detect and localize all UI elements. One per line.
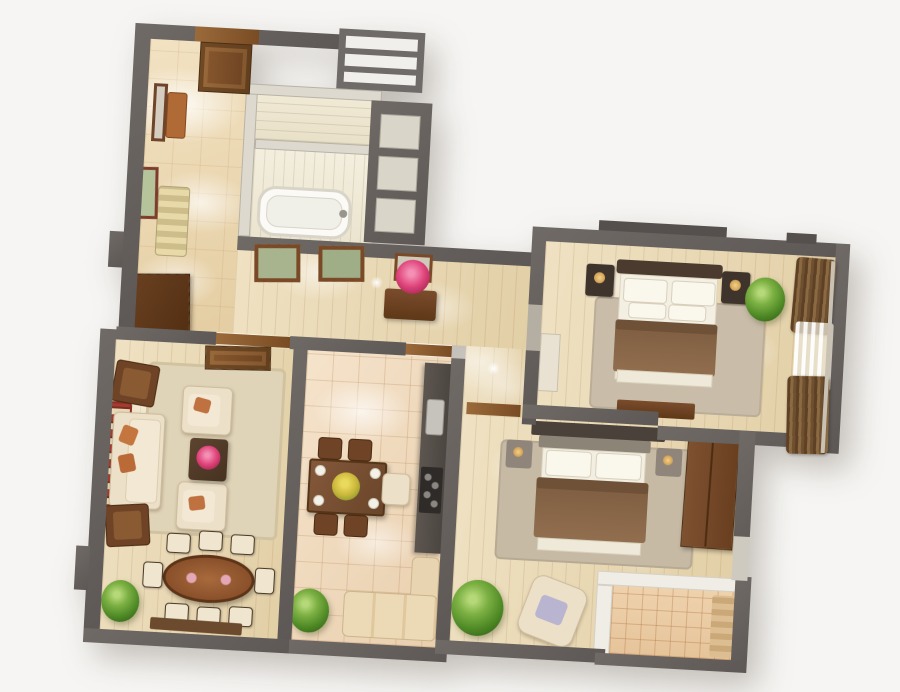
entrance-door-leaf — [198, 42, 253, 95]
corridor-picture-1 — [254, 244, 300, 282]
stove-burners — [421, 470, 441, 511]
dining-chair-1 — [166, 533, 191, 554]
dining-chair-3 — [230, 534, 255, 555]
dining-chair-2 — [198, 530, 223, 551]
kitchen-chair-2 — [347, 438, 372, 461]
kitchen-armchair — [381, 472, 411, 506]
side-chair-bottom-seat — [113, 511, 142, 540]
balcony-door-gap — [731, 536, 749, 581]
dining-chair-8 — [254, 567, 275, 594]
bedroom1-door-gap — [526, 304, 543, 351]
side-chair-top-seat — [119, 367, 152, 400]
corridor-picture-2 — [318, 246, 364, 282]
floorplan-stage — [0, 0, 900, 692]
wall-bedroom1-top-notch2 — [786, 233, 817, 245]
apartment-floorplan — [0, 0, 900, 692]
bedroom2-pillow-1 — [545, 450, 592, 479]
kitchen-sink — [425, 399, 445, 436]
kitchen-bench-seat — [342, 590, 438, 641]
shaft-window-2 — [377, 156, 419, 192]
shaft-top-bar-1 — [345, 48, 417, 58]
wall-bump-upper-left — [108, 231, 124, 268]
armchair-bottom-pillow — [188, 495, 206, 511]
bathtub-basin — [265, 195, 343, 231]
shaft-window-3 — [374, 198, 416, 234]
living-door-leaf — [205, 345, 271, 370]
hall-bench — [155, 185, 191, 257]
wall-bump-lower-left — [74, 545, 90, 590]
hall-console — [165, 92, 188, 139]
bedroom1-cabinet — [538, 333, 561, 392]
kitchen-chair-1 — [317, 437, 342, 460]
kitchen-chair-4 — [343, 514, 368, 537]
dining-chair-7 — [142, 561, 163, 588]
bedroom2-pillow-2 — [595, 452, 642, 481]
bedroom1-pillow-2 — [671, 280, 716, 306]
shaft-window-1 — [379, 114, 421, 150]
sofa-pillow-2 — [117, 453, 136, 474]
duct-shaft-top — [336, 28, 425, 93]
kitchen-chair-3 — [313, 513, 338, 536]
bedroom1-pillow-3 — [628, 302, 667, 320]
bathtub — [256, 185, 353, 240]
bedroom1-pillow-1 — [623, 278, 668, 304]
duct-shaft-wall — [364, 100, 433, 245]
shaft-top-bar-2 — [344, 66, 416, 76]
wc-floor — [255, 95, 371, 145]
bedroom1-pillow-4 — [668, 304, 707, 322]
